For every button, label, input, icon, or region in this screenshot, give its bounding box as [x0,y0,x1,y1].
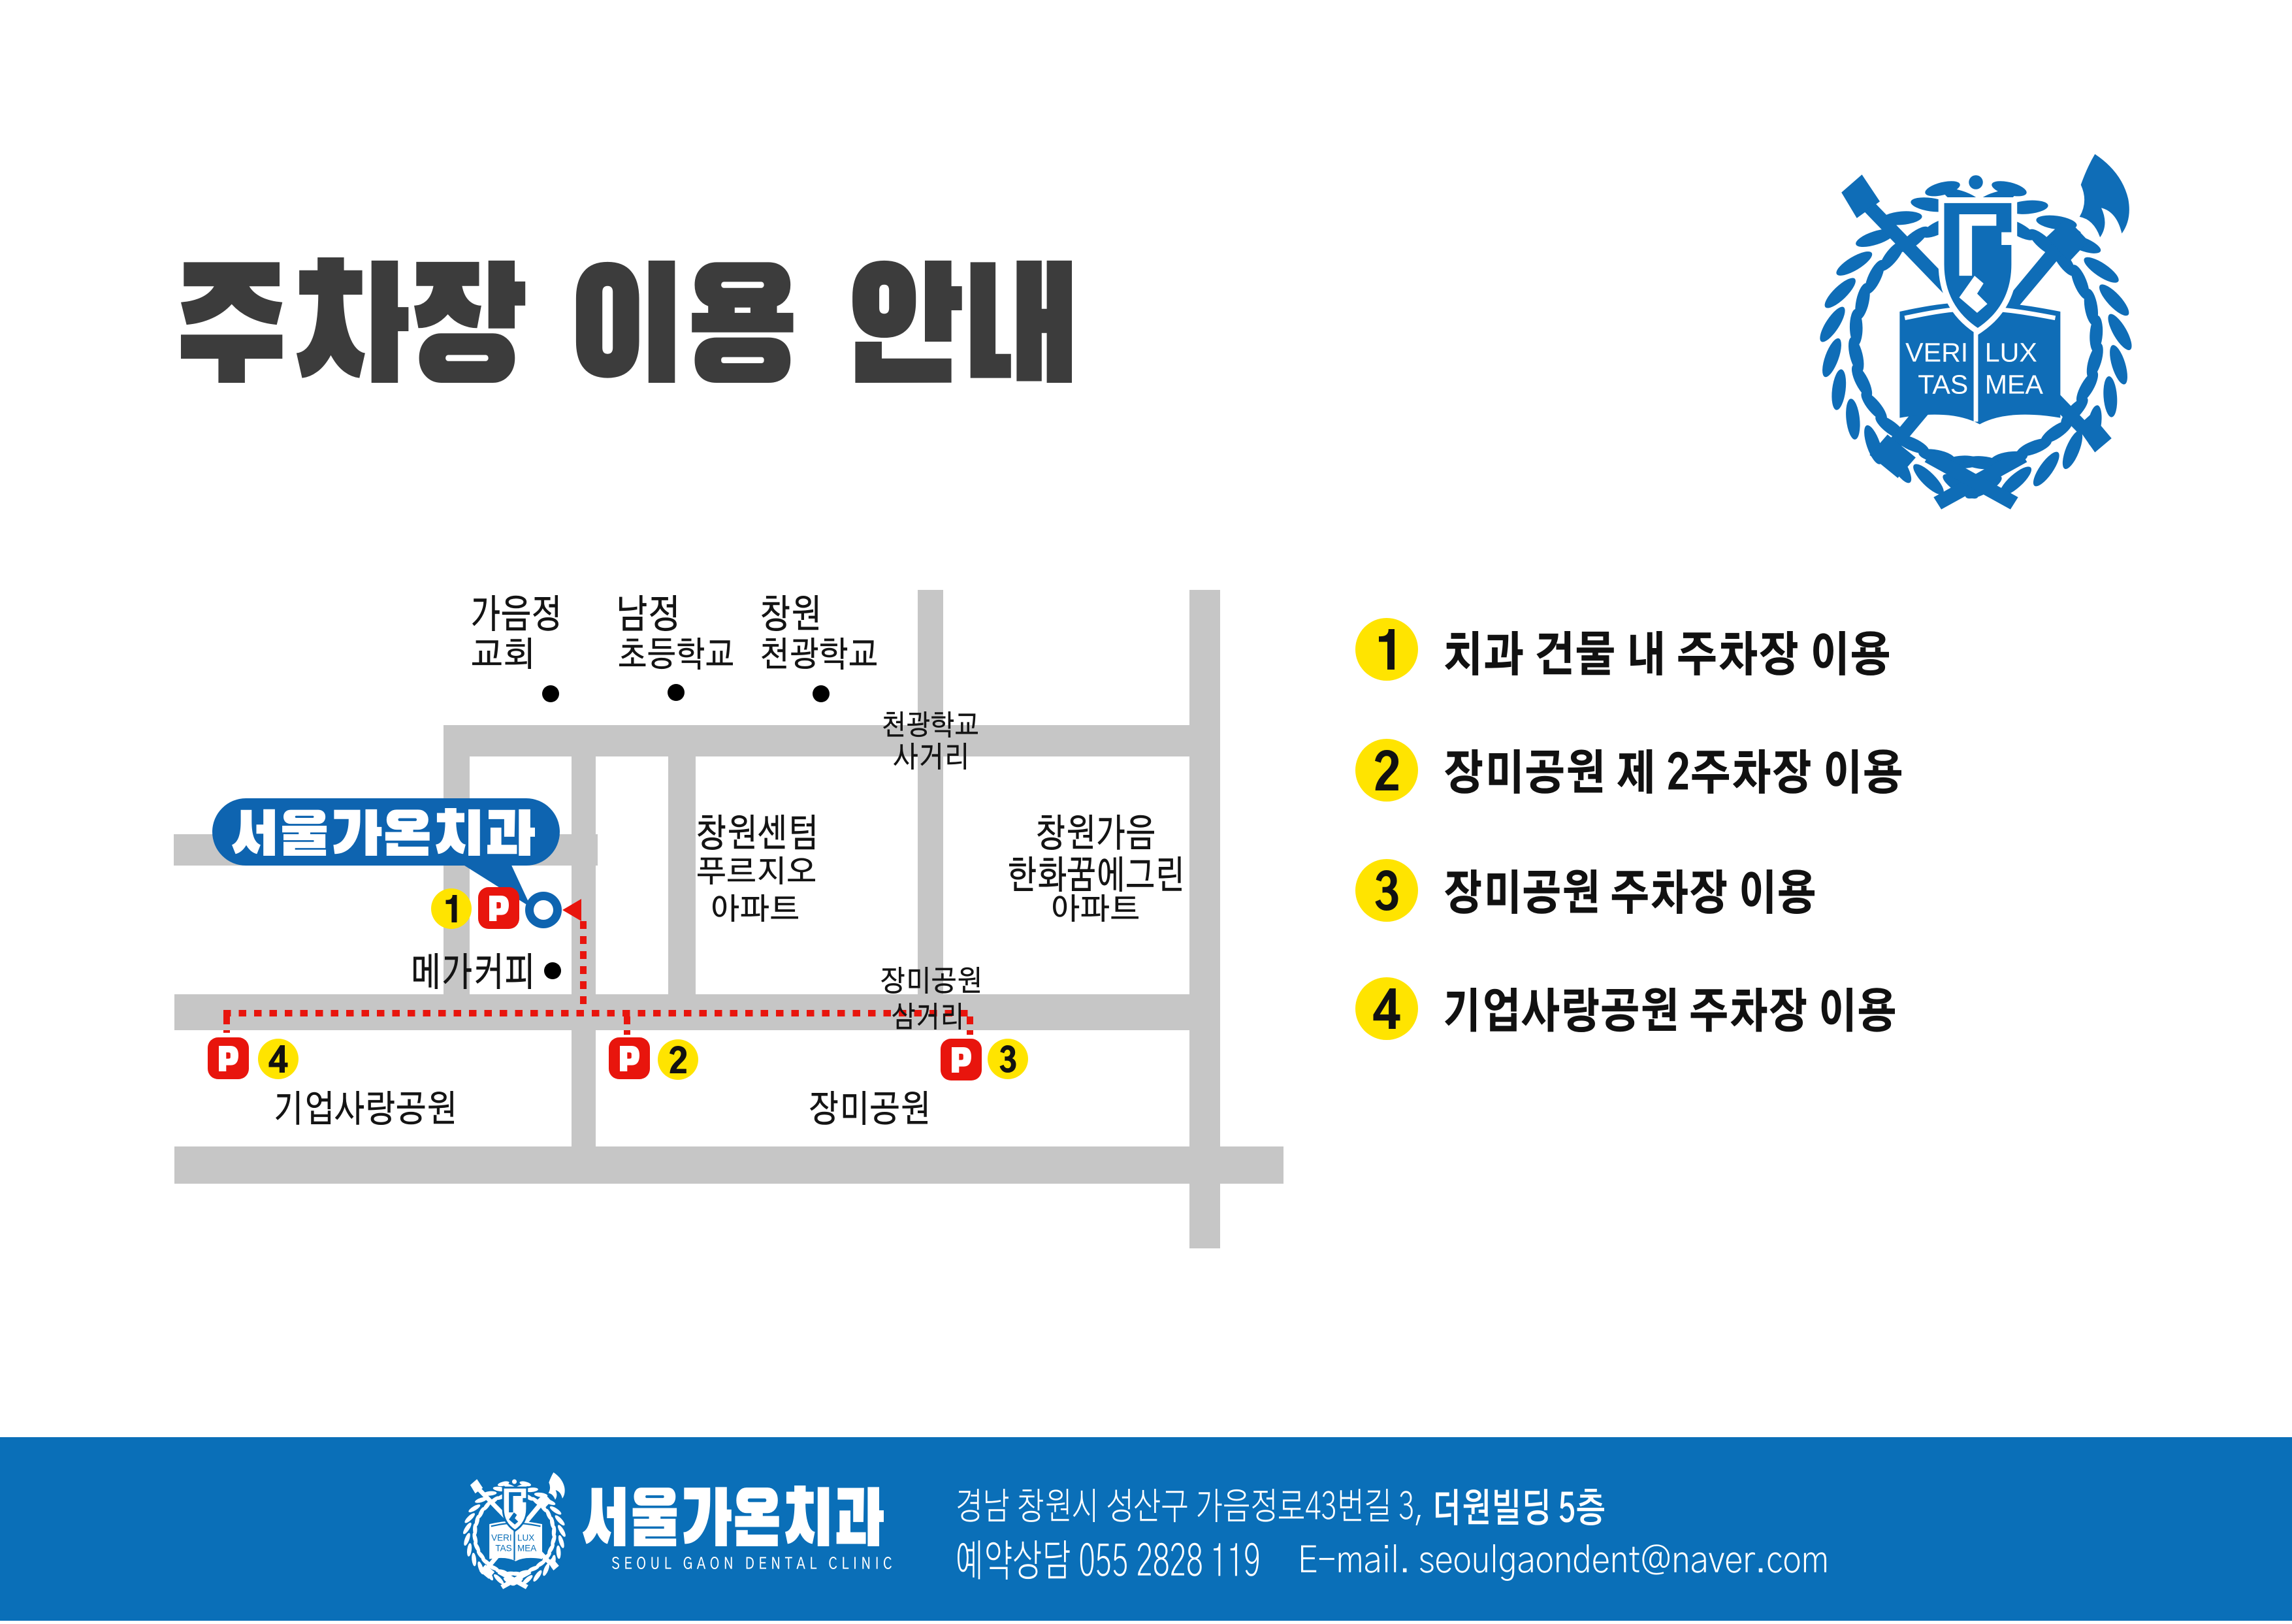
svg-text:VERI: VERI [491,1533,512,1542]
svg-text:LUX: LUX [517,1533,534,1542]
svg-text:MEA: MEA [517,1543,536,1553]
svg-text:TAS: TAS [495,1543,511,1553]
svg-text:MEA: MEA [1985,369,2044,399]
svg-text:TAS: TAS [1918,369,1968,399]
svg-text:LUX: LUX [1985,337,2037,367]
svg-text:VERI: VERI [1905,337,1968,367]
